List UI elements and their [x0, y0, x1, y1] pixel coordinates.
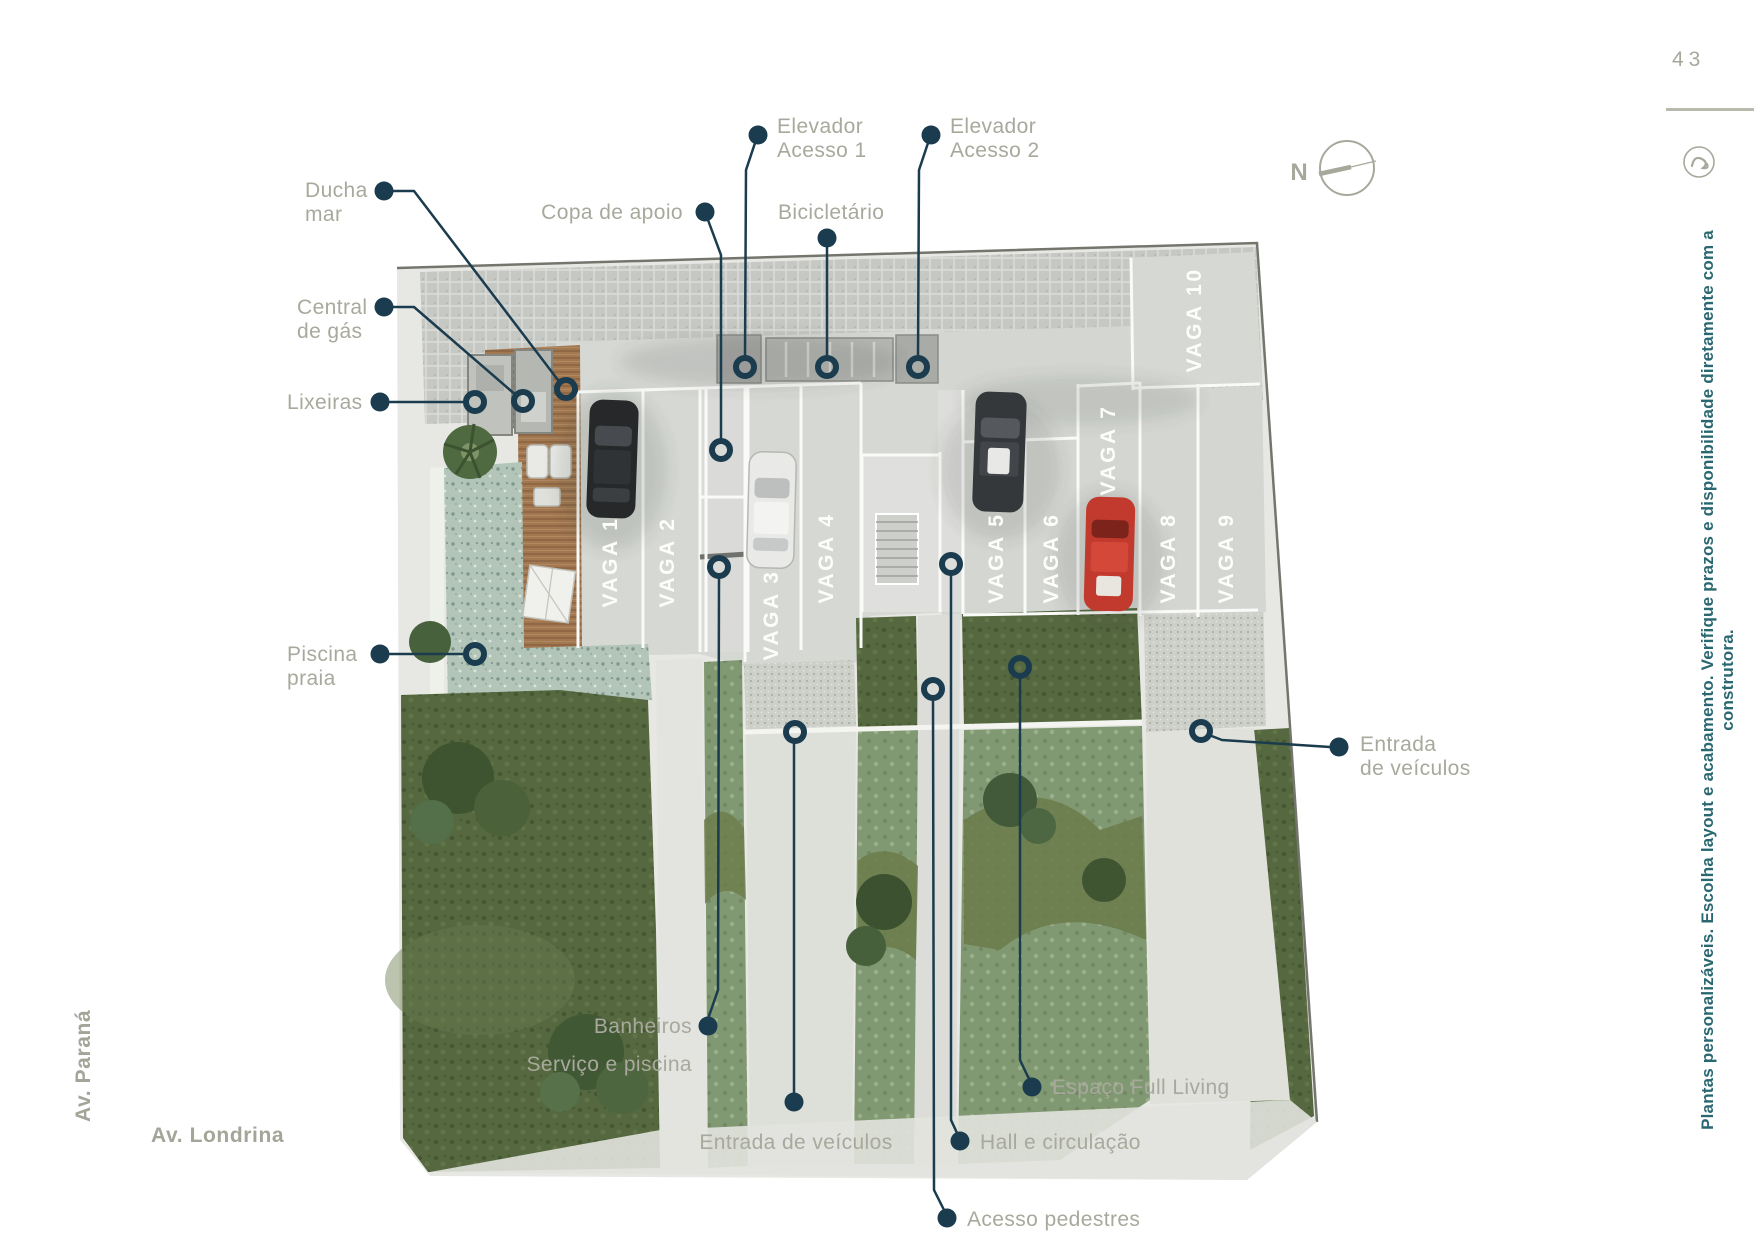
label-entrada-veiculos-direita: Entrada de veículos: [1360, 733, 1471, 781]
brochure-page: VAGA 1 VAGA 2 VAGA 3 VAGA 4 VAGA 5 VAGA …: [0, 0, 1754, 1241]
car-red: [1084, 496, 1136, 611]
compass: N: [1290, 141, 1376, 195]
label-hall-circulacao: Hall e circulação: [980, 1131, 1141, 1155]
label-entrada-veiculos-inferior: Entrada de veículos: [698, 1131, 894, 1155]
label-banheiros: Banheiros Serviço e piscina: [482, 1008, 692, 1084]
label-elevador-acesso-1: Elevador Acesso 1: [777, 115, 867, 163]
stall-label-vaga-7: VAGA 7: [1097, 405, 1120, 496]
car-dark-gray: [972, 391, 1027, 513]
label-piscina-praia: Piscina praia: [287, 643, 358, 691]
stall-label-vaga-3: VAGA 3: [760, 570, 783, 661]
page-number: 43: [1672, 48, 1705, 72]
stall-label-vaga-9: VAGA 9: [1215, 513, 1238, 604]
street-label-av-londrina: Av. Londrina: [151, 1124, 284, 1148]
label-central-gas: Central de gás: [297, 296, 368, 344]
label-bicicletario: Bicicletário: [778, 201, 884, 225]
street-label-av-parana: Av. Paraná: [72, 1010, 96, 1122]
stall-label-vaga-2: VAGA 2: [656, 517, 679, 608]
stall-label-vaga-5: VAGA 5: [985, 513, 1008, 604]
car-black: [586, 399, 639, 519]
stall-label-vaga-6: VAGA 6: [1040, 513, 1063, 604]
brand-icon: [1684, 147, 1714, 177]
stall-label-vaga-4: VAGA 4: [815, 513, 838, 604]
stairs: [876, 514, 918, 584]
label-acesso-pedestres: Acesso pedestres: [967, 1208, 1140, 1232]
compass-n-label: N: [1290, 159, 1307, 186]
label-copa-apoio: Copa de apoio: [483, 201, 683, 225]
car-white: [746, 451, 796, 568]
label-ducha-mar: Ducha mar: [305, 179, 368, 227]
header-rule: [1666, 108, 1754, 111]
label-lixeiras: Lixeiras: [287, 391, 363, 415]
stall-label-vaga-8: VAGA 8: [1157, 513, 1180, 604]
site-plan-illustration: VAGA 1 VAGA 2 VAGA 3 VAGA 4 VAGA 5 VAGA …: [0, 0, 1754, 1241]
disclaimer-vertical-note: Plantas personalizáveis. Escolha layout …: [1698, 230, 1738, 1130]
stall-label-vaga-10: VAGA 10: [1183, 267, 1206, 372]
stall-label-vaga-1: VAGA 1: [599, 517, 622, 608]
label-espaco-full-living: Espaço Full Living: [1052, 1076, 1230, 1100]
label-elevador-acesso-2: Elevador Acesso 2: [950, 115, 1040, 163]
